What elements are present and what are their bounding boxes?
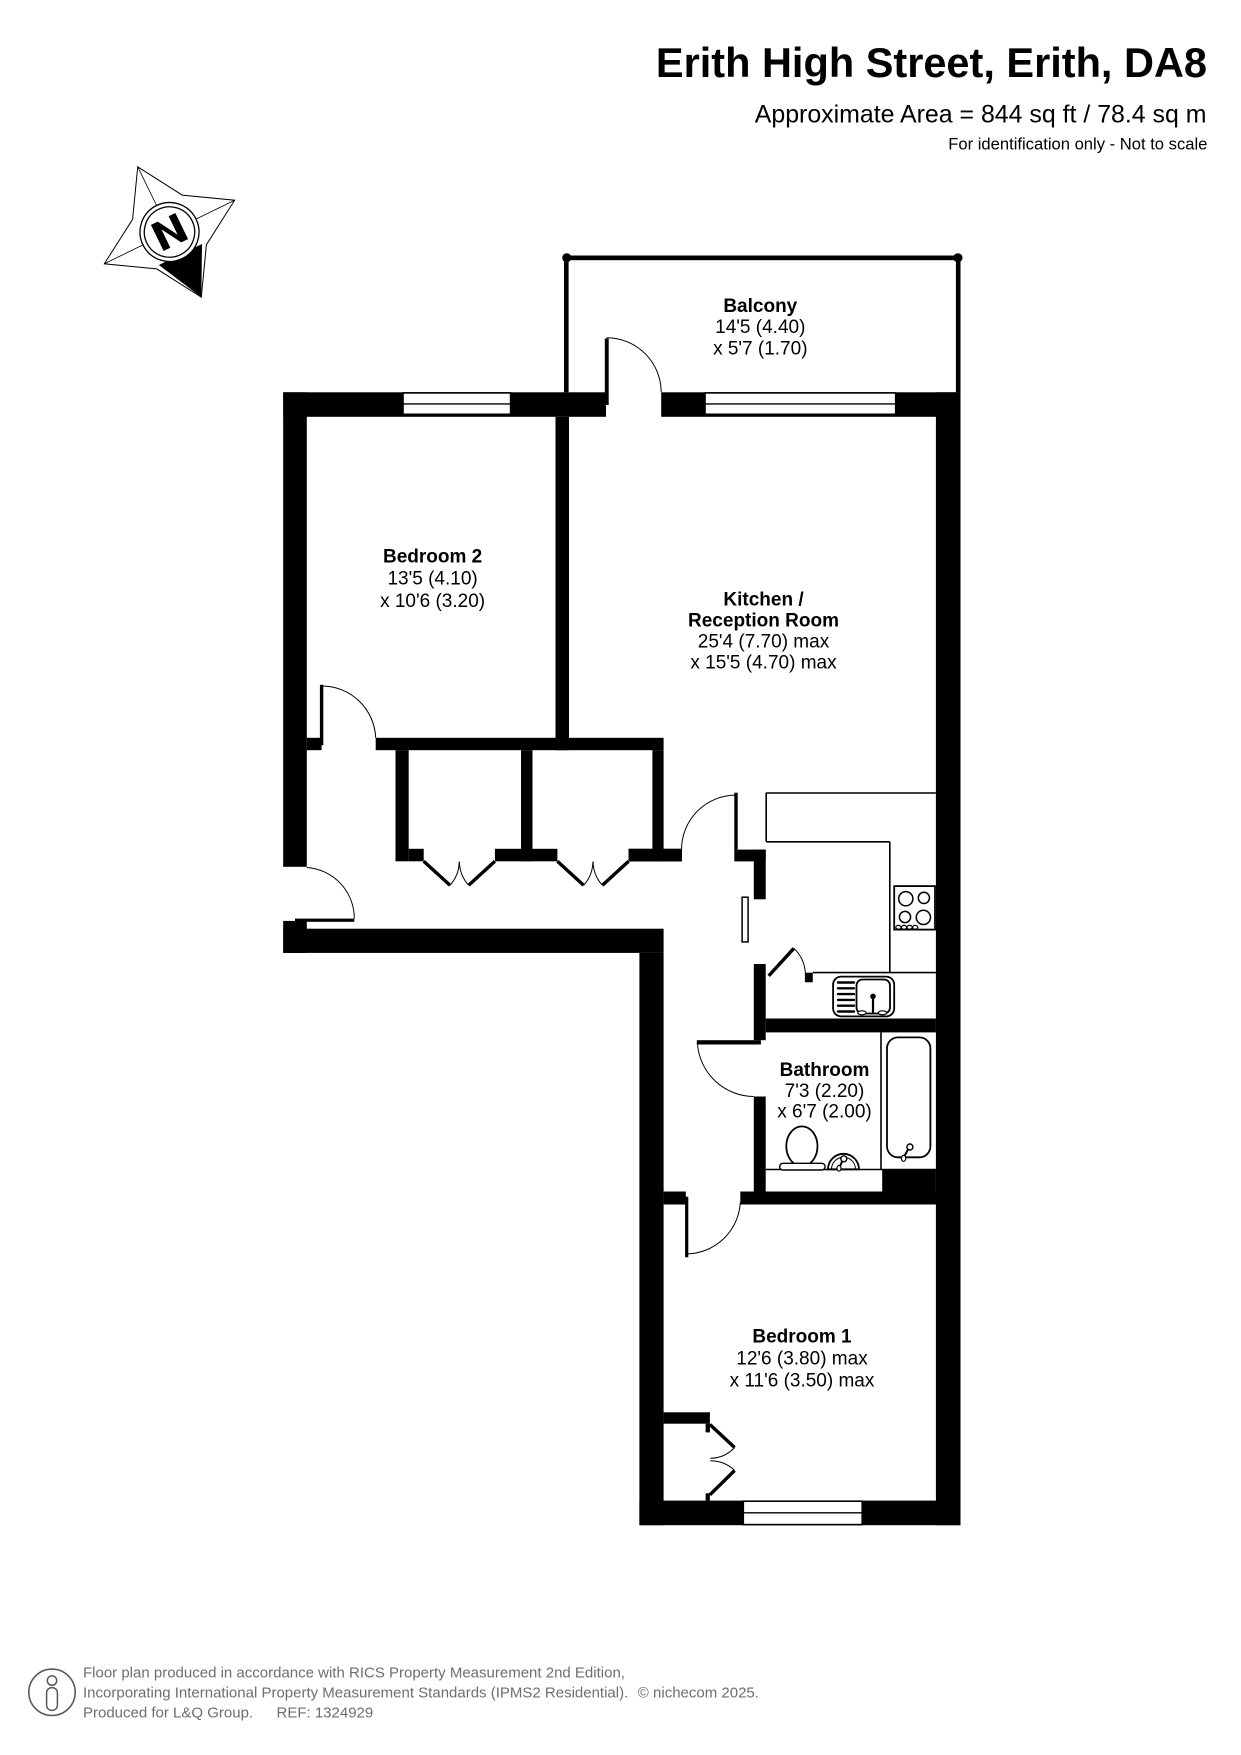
svg-text:x 11'6 (3.50) max: x 11'6 (3.50) max: [730, 1371, 875, 1392]
svg-text:Produced for L&Q Group.: Produced for L&Q Group.: [83, 1705, 253, 1722]
svg-text:Incorporating International Pr: Incorporating International Property Mea…: [83, 1685, 628, 1702]
svg-text:Approximate Area = 844 sq ft /: Approximate Area = 844 sq ft / 78.4 sq m: [755, 100, 1207, 128]
svg-text:Floor plan produced in accorda: Floor plan produced in accordance with R…: [83, 1665, 625, 1682]
svg-text:25'4 (7.70) max: 25'4 (7.70) max: [698, 632, 830, 653]
svg-text:12'6 (3.80) max: 12'6 (3.80) max: [736, 1349, 868, 1370]
svg-text:Kitchen /: Kitchen /: [723, 590, 804, 611]
svg-text:For identification only - Not: For identification only - Not to scale: [948, 134, 1207, 153]
svg-text:Reception Room: Reception Room: [688, 611, 839, 632]
svg-text:x 5'7 (1.70): x 5'7 (1.70): [713, 338, 807, 359]
svg-text:x 6'7 (2.00): x 6'7 (2.00): [777, 1102, 871, 1123]
svg-text:13'5 (4.10): 13'5 (4.10): [387, 569, 477, 590]
svg-text:REF: 1324929: REF: 1324929: [277, 1705, 374, 1722]
svg-text:Balcony: Balcony: [723, 296, 797, 317]
svg-text:7'3 (2.20): 7'3 (2.20): [785, 1081, 865, 1102]
svg-text:Bathroom: Bathroom: [780, 1060, 870, 1081]
svg-text:x 10'6 (3.20): x 10'6 (3.20): [380, 591, 485, 612]
svg-text:Erith High Street, Erith, DA8: Erith High Street, Erith, DA8: [656, 39, 1207, 86]
svg-text:Bedroom 1: Bedroom 1: [752, 1327, 852, 1348]
svg-text:© nichecom 2025.: © nichecom 2025.: [638, 1685, 759, 1702]
svg-text:x 15'5 (4.70) max: x 15'5 (4.70) max: [690, 653, 837, 674]
svg-text:Bedroom 2: Bedroom 2: [383, 547, 482, 568]
svg-text:14'5 (4.40): 14'5 (4.40): [715, 317, 805, 338]
